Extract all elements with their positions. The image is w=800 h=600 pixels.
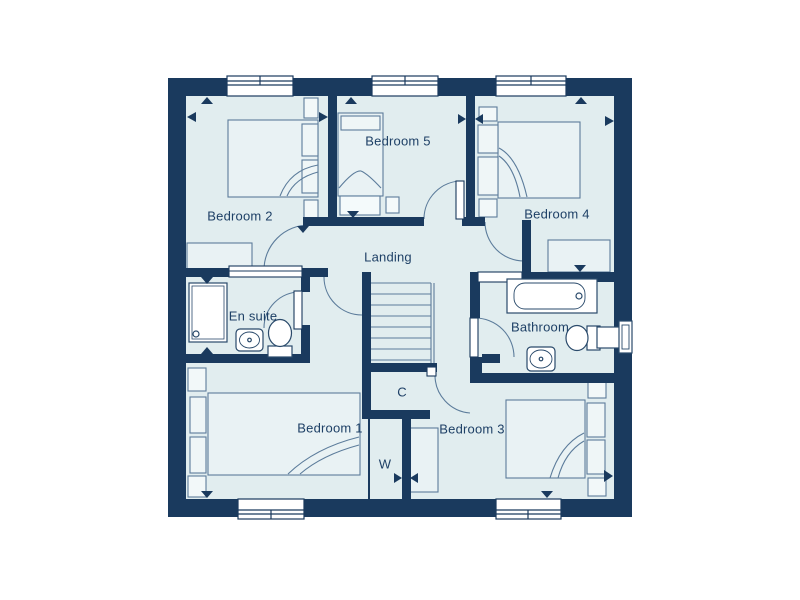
wall-bathroom-south (470, 373, 614, 383)
wall-bedroom4-door (522, 220, 531, 272)
door-leaf-icon (294, 291, 302, 329)
sink-icon (527, 347, 555, 371)
toilet-icon (566, 326, 600, 351)
room-label-en-suite: En suite (229, 309, 278, 324)
wall-outer-right (614, 96, 632, 499)
floorplan-page: Bedroom 2 Bedroom 5 Bedroom 4 Landing En… (0, 0, 800, 600)
cabinet-icon (409, 428, 438, 492)
room-label-landing: Landing (364, 250, 412, 265)
door-leaf-icon (427, 367, 436, 376)
wardrobe-front-line (368, 419, 370, 499)
wall-bedroom4-landing-stub (462, 217, 485, 226)
wall-wardrobe-east (402, 419, 411, 499)
floorplan-drawing (0, 0, 800, 600)
toilet-icon (268, 320, 292, 358)
door-leaf-icon (229, 266, 302, 277)
window-icon (496, 76, 566, 96)
dresser-icon (340, 196, 380, 215)
wall-outer-left (168, 96, 186, 499)
room-label-bedroom-2: Bedroom 2 (207, 209, 272, 224)
wall-bedroom5-bedroom4 (466, 96, 475, 226)
room-label-wardrobe: W (379, 457, 391, 472)
bath-icon (507, 279, 597, 313)
door-leaf-icon (470, 318, 478, 357)
wall-bathroom-stub (482, 354, 500, 363)
window-icon (372, 76, 438, 96)
window-icon (238, 499, 304, 519)
room-label-bedroom-1: Bedroom 1 (297, 421, 362, 436)
wall-bathroom-west-lower (470, 357, 482, 374)
room-label-bedroom-3: Bedroom 3 (439, 422, 504, 437)
wall-stairs-south (362, 363, 437, 372)
wall-bedroom5-landing (337, 217, 424, 226)
room-label-bedroom-5: Bedroom 5 (365, 134, 430, 149)
door-leaf-icon (456, 181, 464, 219)
window-icon (496, 499, 561, 519)
wall-bedroom2-bedroom5 (328, 96, 337, 226)
room-label-cupboard: C (397, 385, 407, 400)
room-label-bedroom-4: Bedroom 4 (524, 207, 589, 222)
sink-icon (236, 329, 263, 351)
bed-icon (338, 113, 383, 196)
wall-stairs-west (362, 272, 371, 419)
bedside-unit-icon (386, 197, 399, 213)
wall-cupboard-south (368, 410, 430, 419)
room-label-bathroom: Bathroom (511, 320, 569, 335)
wall-bedroom2-south (186, 268, 230, 277)
wall-landing-stub-west (303, 217, 337, 226)
shower-icon (189, 283, 227, 342)
window-icon (227, 76, 293, 96)
